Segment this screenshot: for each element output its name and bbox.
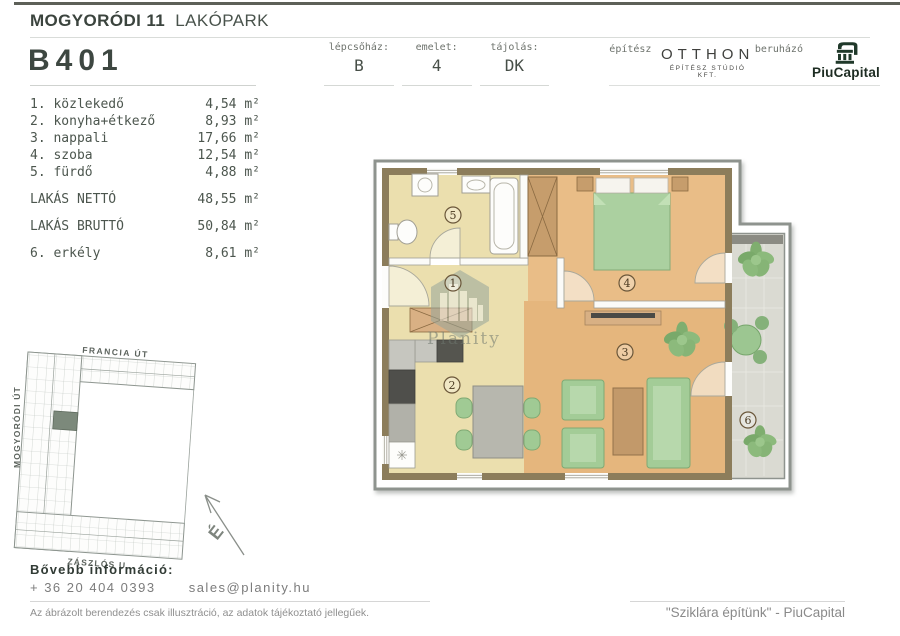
contact-line: + 36 20 404 0393 sales@planity.hu xyxy=(30,580,311,595)
footer-divider-right xyxy=(630,601,845,602)
email-address: sales@planity.hu xyxy=(189,580,311,595)
area-row-5: 5. fürdő4,88 m² xyxy=(30,164,260,181)
area-row-balcony: 6. erkély8,61 m² xyxy=(30,245,260,262)
room-marker-5: 5 xyxy=(445,207,461,223)
staircase-label: lépcsőház: xyxy=(324,42,394,53)
info-cell-staircase: lépcsőház: B xyxy=(324,40,394,86)
info-cell-orientation: tájolás: DK xyxy=(480,40,550,86)
room-area: 4,88 m² xyxy=(205,164,260,181)
area-row-net: LAKÁS NETTÓ48,55 m² xyxy=(30,191,260,208)
company-quote: "Sziklára építünk" - PiuCapital xyxy=(666,605,845,620)
room-marker-3: 3 xyxy=(617,344,633,360)
chair xyxy=(524,398,540,418)
site-plan-drawing: FRANCIA ÚT ZÁSZLÓS U. MOGYORÓDI ÚT xyxy=(12,343,268,568)
balcony-label: 6. erkély xyxy=(30,245,100,262)
room-label: 4. szoba xyxy=(30,147,93,164)
room-area-list: 1. közlekedő4,54 m² 2. konyha+étkező8,93… xyxy=(30,96,260,262)
chair xyxy=(524,430,540,450)
architect-label: építész xyxy=(609,44,651,55)
room-marker-1: 1 xyxy=(445,275,461,291)
building-outline: FRANCIA ÚT ZÁSZLÓS U. xyxy=(13,343,196,568)
floor-plan: Planity 1 2 3 4 5 6 xyxy=(372,158,795,492)
net-area: 48,55 m² xyxy=(197,191,260,208)
phone-number: + 36 20 404 0393 xyxy=(30,580,156,595)
unit-id-underline xyxy=(30,85,256,86)
balcony xyxy=(724,234,785,479)
chair xyxy=(456,430,472,450)
piucapital-logo: PiuCapital xyxy=(812,40,880,80)
more-info-title: Bővebb információ: xyxy=(30,562,174,577)
gross-area: 50,84 m² xyxy=(197,218,260,235)
area-row-1: 1. közlekedő4,54 m² xyxy=(30,96,260,113)
floor-value: 4 xyxy=(402,56,472,75)
footer-divider-left xyxy=(30,601,430,602)
room-label: 5. fürdő xyxy=(30,164,93,181)
developer-label: beruházó xyxy=(755,44,803,55)
balcony-area: 8,61 m² xyxy=(205,245,260,262)
area-row-gross: LAKÁS BRUTTÓ50,84 m² xyxy=(30,218,260,235)
orientation-value: DK xyxy=(480,56,550,75)
room-label: 1. közlekedő xyxy=(30,96,124,113)
svg-text:5: 5 xyxy=(450,209,457,222)
orientation-label: tájolás: xyxy=(480,42,550,53)
highlighted-unit xyxy=(53,411,78,431)
staircase-value: B xyxy=(324,56,394,75)
unit-id: B401 xyxy=(28,44,124,78)
watermark-text: Planity xyxy=(427,329,501,349)
svg-text:1: 1 xyxy=(450,277,457,290)
piucapital-logo-icon xyxy=(829,40,863,64)
room-marker-4: 4 xyxy=(619,275,635,291)
wardrobe xyxy=(528,177,557,256)
svg-text:6: 6 xyxy=(745,414,752,427)
project-title-light: LAKÓPARK xyxy=(175,11,269,30)
street-label-left: MOGYORÓDI ÚT xyxy=(12,386,22,468)
room-area: 17,66 m² xyxy=(197,130,260,147)
north-arrow-icon: É xyxy=(204,495,244,555)
piucapital-logo-name: PiuCapital xyxy=(812,65,880,80)
svg-text:4: 4 xyxy=(624,277,631,290)
architect-block: építész OTTHON ÉPÍTÉSZ STÚDIÓ KFT. xyxy=(609,40,755,86)
net-label: LAKÁS NETTÓ xyxy=(30,191,116,208)
floor-plan-drawing: Planity 1 2 3 4 5 6 xyxy=(372,158,795,492)
room-label: 3. nappali xyxy=(30,130,108,147)
dining-table xyxy=(473,386,523,458)
room-marker-2: 2 xyxy=(444,377,460,393)
unit-info-bar: lépcsőház: B emelet: 4 tájolás: DK építé… xyxy=(324,40,880,86)
room-area: 4,54 m² xyxy=(205,96,260,113)
room-marker-6: 6 xyxy=(740,412,756,428)
disclaimer-text: Az ábrázolt berendezés csak illusztráció… xyxy=(30,607,369,619)
svg-text:3: 3 xyxy=(622,346,629,359)
project-title-bold: MOGYORÓDI 11 xyxy=(30,11,165,30)
coffee-table xyxy=(613,388,643,455)
floor-label: emelet: xyxy=(402,42,472,53)
top-divider xyxy=(14,2,900,5)
room-area: 12,54 m² xyxy=(197,147,260,164)
project-title: MOGYORÓDI 11 LAKÓPARK xyxy=(30,11,269,31)
floor-plan-page: MOGYORÓDI 11 LAKÓPARK B401 lépcsőház: B … xyxy=(0,0,900,636)
chair xyxy=(456,398,472,418)
tv xyxy=(591,313,655,318)
room-area: 8,93 m² xyxy=(205,113,260,130)
toilet xyxy=(397,220,417,244)
otthon-logo: OTTHON ÉPÍTÉSZ STÚDIÓ KFT. xyxy=(660,46,754,79)
area-row-4: 4. szoba12,54 m² xyxy=(30,147,260,164)
otthon-logo-name: OTTHON xyxy=(660,46,754,63)
room-label: 2. konyha+étkező xyxy=(30,113,155,130)
info-cell-floor: emelet: 4 xyxy=(402,40,472,86)
gross-label: LAKÁS BRUTTÓ xyxy=(30,218,124,235)
site-plan: FRANCIA ÚT ZÁSZLÓS U. MOGYORÓDI ÚT xyxy=(12,343,268,568)
area-row-2: 2. konyha+étkező8,93 m² xyxy=(30,113,260,130)
svg-text:2: 2 xyxy=(449,379,456,392)
area-row-3: 3. nappali17,66 m² xyxy=(30,130,260,147)
header-divider xyxy=(30,37,870,38)
otthon-logo-subtitle: ÉPÍTÉSZ STÚDIÓ KFT. xyxy=(660,65,754,79)
developer-block: beruházó PiuCapital xyxy=(755,40,880,86)
